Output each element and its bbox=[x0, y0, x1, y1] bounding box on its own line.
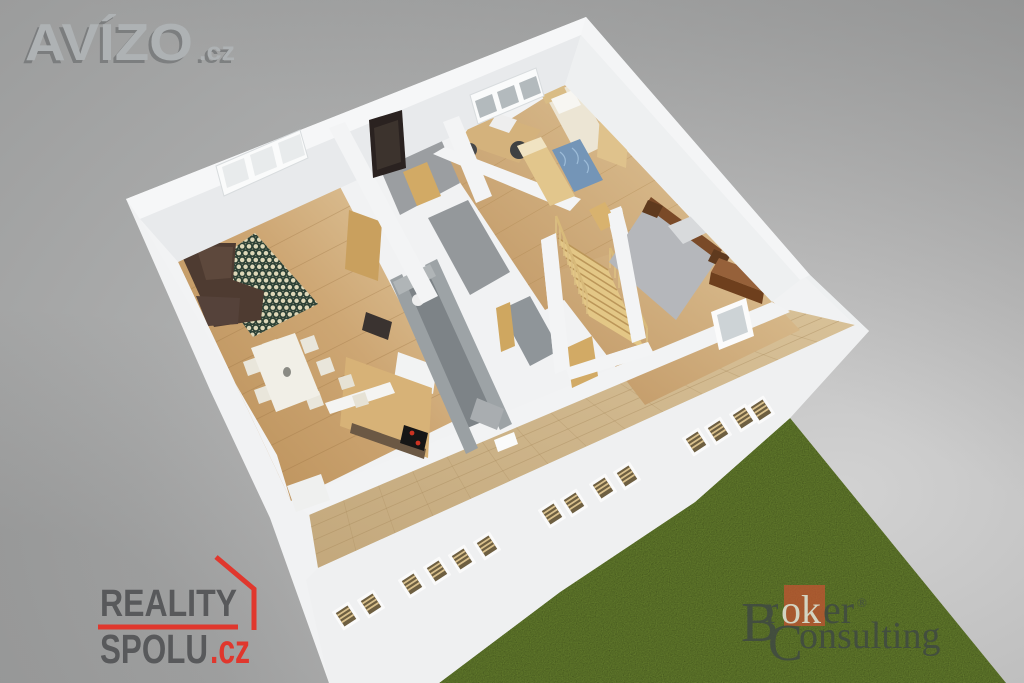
svg-text:.cz: .cz bbox=[210, 626, 250, 672]
svg-text:C: C bbox=[768, 615, 803, 672]
svg-text:.cz: .cz bbox=[199, 38, 235, 66]
svg-text:REALITY: REALITY bbox=[100, 583, 237, 625]
svg-text:AVÍZO: AVÍZO bbox=[25, 14, 193, 72]
svg-text:®: ® bbox=[857, 595, 867, 610]
svg-text:onsulting: onsulting bbox=[799, 615, 940, 657]
svg-text:SPOLU: SPOLU bbox=[100, 626, 208, 672]
